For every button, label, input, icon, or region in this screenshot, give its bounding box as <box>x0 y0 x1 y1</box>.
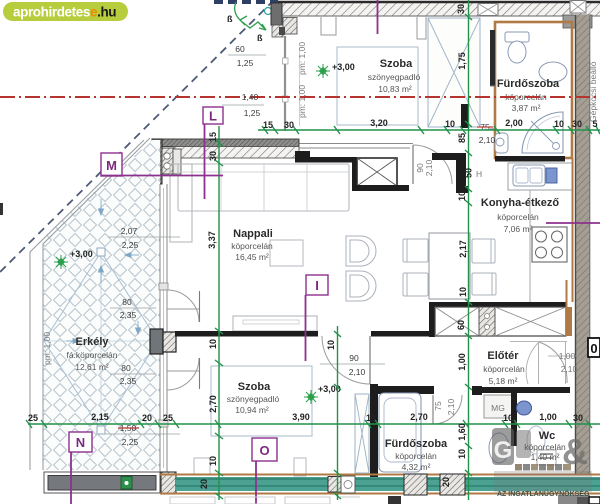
svg-text:3,37: 3,37 <box>207 231 217 249</box>
svg-text:90: 90 <box>349 353 359 363</box>
svg-text:20: 20 <box>142 413 152 423</box>
svg-text:5,18 m²: 5,18 m² <box>489 376 518 386</box>
svg-text:köporcelán: köporcelán <box>231 241 273 251</box>
svg-text:2,00: 2,00 <box>505 118 523 128</box>
svg-text:köporcelán: köporcelán <box>395 451 437 461</box>
svg-text:60: 60 <box>456 320 466 330</box>
svg-text:1,00: 1,00 <box>559 351 576 361</box>
svg-text:5: 5 <box>592 119 597 129</box>
svg-text:30: 30 <box>456 4 466 14</box>
svg-text:2,10: 2,10 <box>424 159 434 176</box>
svg-text:2,35: 2,35 <box>120 376 137 386</box>
svg-text:10,94 m²: 10,94 m² <box>235 405 269 415</box>
svg-text:10: 10 <box>445 119 455 129</box>
svg-text:30: 30 <box>208 151 218 161</box>
svg-text:2,10: 2,10 <box>446 398 456 415</box>
svg-text:30: 30 <box>572 119 582 129</box>
svg-text:10: 10 <box>503 413 513 423</box>
svg-text:Fürdőszoba: Fürdőszoba <box>385 438 448 450</box>
svg-text:20: 20 <box>199 479 209 489</box>
svg-text:15: 15 <box>263 120 273 130</box>
svg-text:1,40 m²: 1,40 m² <box>531 452 560 462</box>
svg-text:pm: 1,00: pm: 1,00 <box>297 42 307 75</box>
svg-text:szönyegpadló: szönyegpadló <box>368 72 421 82</box>
svg-text:10: 10 <box>366 413 376 423</box>
svg-text:1,40: 1,40 <box>242 92 259 102</box>
svg-text:ß: ß <box>257 33 263 43</box>
svg-text:MG: MG <box>491 403 505 413</box>
svg-text:85: 85 <box>457 133 467 143</box>
svg-text:25: 25 <box>163 413 173 423</box>
svg-text:2,07: 2,07 <box>121 226 138 236</box>
svg-text:N: N <box>76 435 85 450</box>
svg-text:30: 30 <box>573 413 583 423</box>
svg-text:2,70: 2,70 <box>410 412 428 422</box>
svg-text:0: 0 <box>590 341 597 356</box>
svg-text:Szoba: Szoba <box>238 381 271 393</box>
svg-text:pm: 1,00: pm: 1,00 <box>297 85 307 118</box>
svg-text:2,17: 2,17 <box>458 240 468 258</box>
svg-text:50: 50 <box>464 168 474 178</box>
svg-text:10,83 m²: 10,83 m² <box>378 84 412 94</box>
svg-text:3,20: 3,20 <box>370 118 388 128</box>
svg-text:10: 10 <box>208 339 218 349</box>
svg-text:+3,00: +3,00 <box>70 249 93 259</box>
svg-text:O: O <box>259 443 269 458</box>
svg-text:köporcelán: köporcelán <box>483 364 525 374</box>
svg-text:1,00: 1,00 <box>539 412 557 422</box>
svg-text:60: 60 <box>235 44 245 54</box>
svg-text:7,06 m²: 7,06 m² <box>504 224 533 234</box>
svg-text:3,87 m²: 3,87 m² <box>512 103 541 113</box>
svg-text:G: G <box>494 437 513 464</box>
svg-text:10: 10 <box>457 191 467 201</box>
svg-text:20: 20 <box>441 477 451 487</box>
svg-text:ß: ß <box>227 14 233 24</box>
svg-text:2,10: 2,10 <box>349 367 366 377</box>
svg-text:Gépkocsi beálló: Gépkocsi beálló <box>588 61 598 122</box>
svg-text:10: 10 <box>326 340 336 350</box>
svg-text:aprohirdetese.hu: aprohirdetese.hu <box>13 5 116 20</box>
svg-text:2,25: 2,25 <box>122 437 139 447</box>
svg-text:10: 10 <box>458 287 468 297</box>
svg-text:1,60: 1,60 <box>457 423 467 441</box>
svg-text:+3,00: +3,00 <box>332 62 355 72</box>
svg-text:Erkély: Erkély <box>75 336 109 348</box>
svg-text:1,00: 1,00 <box>457 353 467 371</box>
svg-text:15: 15 <box>208 132 218 142</box>
svg-text:1,25: 1,25 <box>244 108 261 118</box>
svg-text:szönyegpadló: szönyegpadló <box>227 394 280 404</box>
svg-text:pm: 1,00: pm: 1,00 <box>42 332 52 365</box>
svg-text:10: 10 <box>457 449 467 459</box>
svg-text:köporcelán: köporcelán <box>497 212 539 222</box>
svg-text:2,10: 2,10 <box>561 364 578 374</box>
svg-text:2,25: 2,25 <box>122 240 139 250</box>
svg-text:L: L <box>209 109 217 124</box>
svg-text:1,25: 1,25 <box>237 58 254 68</box>
svg-text:80: 80 <box>122 297 132 307</box>
svg-text:2,70: 2,70 <box>208 395 218 413</box>
svg-text:2,35: 2,35 <box>120 310 137 320</box>
svg-text:1,75: 1,75 <box>457 52 467 70</box>
svg-text:Konyha-étkező: Konyha-étkező <box>481 197 560 209</box>
svg-text:köporcelán: köporcelán <box>524 442 566 452</box>
svg-text:M: M <box>106 158 117 173</box>
svg-text:AZ INGATLANÜGYNÖKSÉG: AZ INGATLANÜGYNÖKSÉG <box>497 489 590 498</box>
svg-text:4,32 m²: 4,32 m² <box>402 462 431 472</box>
svg-text:Szoba: Szoba <box>380 58 413 70</box>
svg-text:75: 75 <box>433 401 443 411</box>
svg-text:Előtér: Előtér <box>487 350 519 362</box>
svg-text:2,10: 2,10 <box>479 135 496 145</box>
svg-text:30: 30 <box>284 120 294 130</box>
svg-text:H: H <box>476 169 482 179</box>
svg-text:3,90: 3,90 <box>292 412 310 422</box>
svg-text:25: 25 <box>28 413 38 423</box>
svg-text:10: 10 <box>208 456 218 466</box>
svg-text:2,15: 2,15 <box>91 412 109 422</box>
svg-text:Fürdőszoba: Fürdőszoba <box>497 78 560 90</box>
svg-text:Nappali: Nappali <box>233 228 273 240</box>
svg-text:I: I <box>315 278 319 293</box>
svg-text:10: 10 <box>554 119 564 129</box>
svg-text:12,61 m²: 12,61 m² <box>75 362 109 372</box>
svg-text:80: 80 <box>121 363 131 373</box>
svg-text:16,45 m²: 16,45 m² <box>235 252 269 262</box>
svg-text:Wc: Wc <box>539 430 556 442</box>
svg-text:fá.köporcelán: fá.köporcelán <box>66 350 117 360</box>
